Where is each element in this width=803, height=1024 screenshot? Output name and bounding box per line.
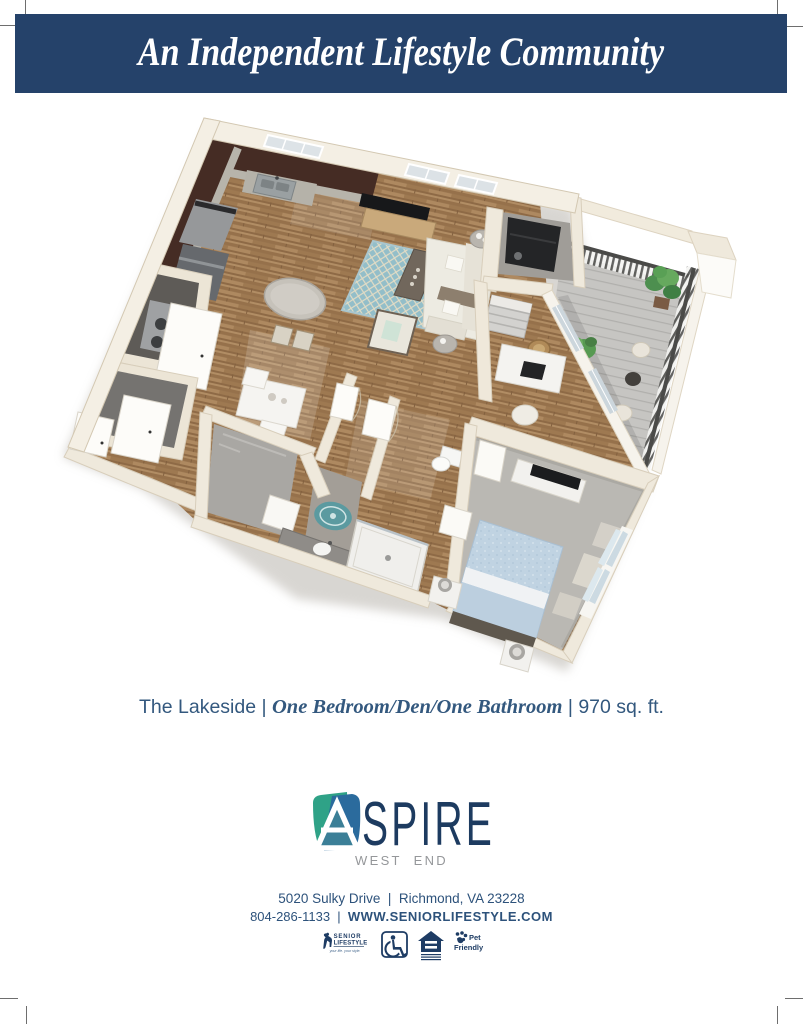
svg-text:SENIOR: SENIOR bbox=[334, 934, 362, 940]
svg-text:Pet: Pet bbox=[469, 933, 481, 942]
svg-text:SPIRE: SPIRE bbox=[362, 789, 495, 858]
svg-text:your life. your style.: your life. your style. bbox=[329, 949, 361, 953]
svg-text:LIFESTYLE: LIFESTYLE bbox=[334, 941, 368, 947]
svg-text:Friendly: Friendly bbox=[454, 943, 484, 952]
